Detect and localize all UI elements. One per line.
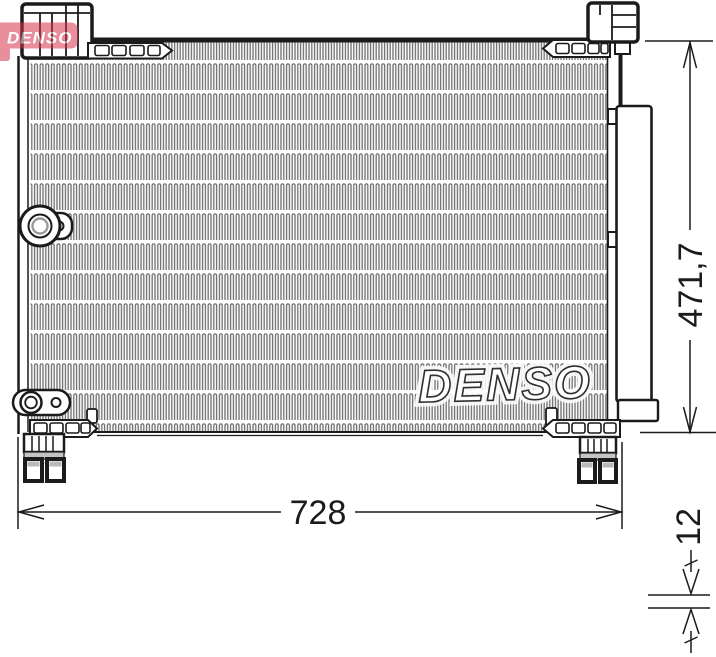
foot-shade [582, 463, 593, 468]
denso-core-watermark: DENSO DENSO [418, 356, 593, 413]
dimension-width: 728 [18, 437, 622, 532]
receiver-drier-end-cap [618, 400, 658, 421]
logo-lower-block [0, 46, 10, 61]
receiver-drier-body [617, 106, 652, 402]
lower-left-pipe-fitting [13, 390, 70, 415]
foot-shade [28, 462, 40, 467]
width-dimension-label: 728 [290, 494, 347, 532]
top-left-header-strip [88, 43, 172, 59]
dimension-depth: 12 [648, 508, 710, 653]
bracket-body [588, 3, 638, 42]
watermark-text: DENSO [418, 356, 593, 413]
leg-yoke [580, 437, 616, 453]
fitting-bolt-hole [52, 398, 61, 407]
leg-yoke [24, 434, 64, 452]
right-header-and-drier [608, 38, 658, 421]
logo-text: DENSO [7, 29, 72, 48]
condenser-drawing: DENSO DENSO DENSO 471,7 728 12 [0, 0, 716, 657]
foot-shade [603, 463, 614, 468]
bottom-right-mounting-bracket [543, 408, 620, 482]
arrowhead-up [683, 610, 699, 635]
bottom-left-mounting-bracket [24, 409, 97, 481]
arrowhead-down [683, 569, 699, 594]
depth-dimension-label: 12 [670, 508, 708, 546]
foot-shade [50, 462, 62, 467]
height-dimension-label: 471,7 [672, 242, 710, 327]
technical-drawing-page: DENSO DENSO DENSO 471,7 728 12 [0, 0, 716, 657]
fitting-port [25, 397, 37, 409]
